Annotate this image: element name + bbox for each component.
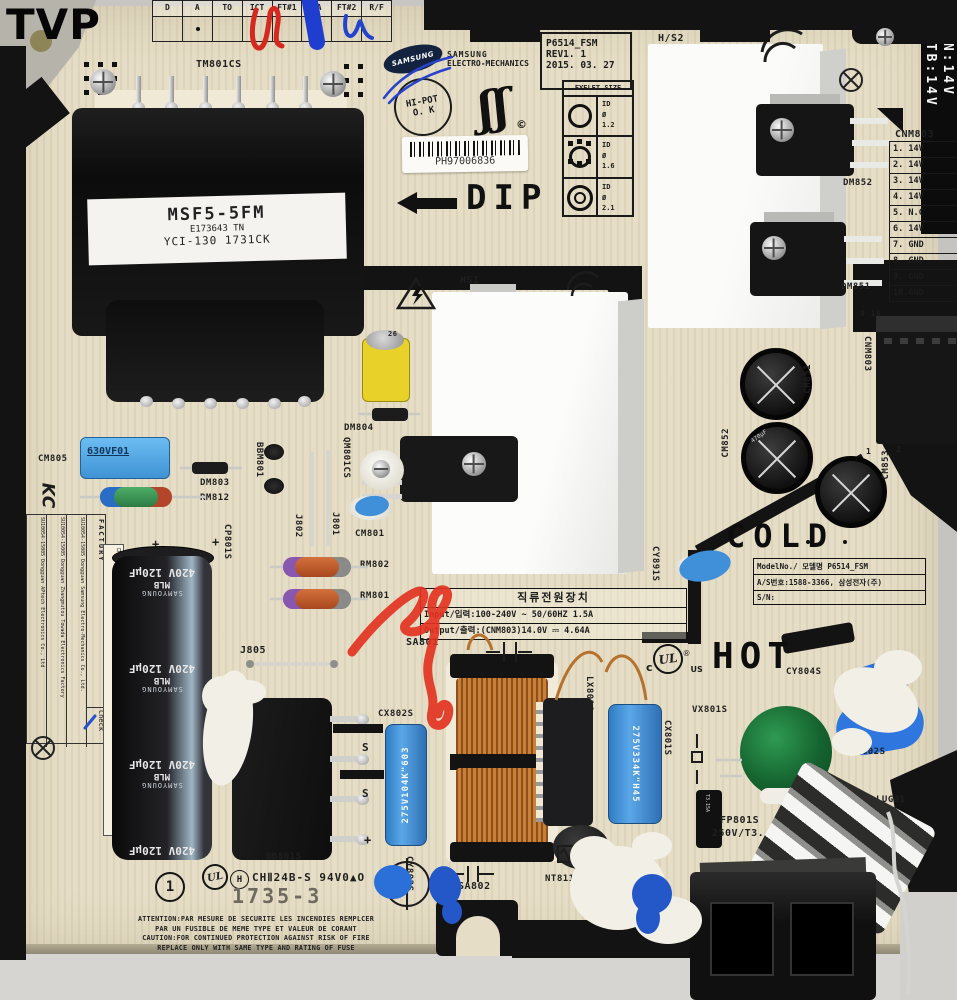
ref-cm853: CM853 [882, 450, 891, 480]
ref-qm801cs: QM801CS [341, 437, 350, 478]
transformer-screw [90, 69, 116, 95]
eyelet-dia: Ø [602, 110, 632, 121]
thermistor-nt811s [553, 825, 609, 869]
ul-r: ® [683, 649, 691, 658]
pin-row: 10.GND [890, 286, 957, 302]
ul-circle: UL [651, 642, 685, 676]
s-mark: S [362, 742, 369, 753]
ref-dm852: DM852 [843, 179, 873, 188]
hipot-line2: O. K [412, 105, 435, 119]
col-header: R/F [362, 1, 391, 16]
table-body-cell [362, 17, 391, 41]
ref-cm851: CM851 [804, 364, 813, 394]
transistor-lead [844, 236, 882, 242]
heatsink-hs1-side [618, 299, 644, 574]
eyelet-title: EYELET SIZE [564, 82, 632, 97]
solder-pad [676, 556, 712, 578]
cap-630vf01: 630VF01 [80, 437, 170, 479]
bottom-right-surface [900, 892, 957, 1000]
dip-arrow-head [397, 192, 417, 214]
plus-mark: + [364, 834, 372, 846]
choke-clamp [450, 842, 554, 862]
cnm803-title: CNM803 [895, 130, 934, 140]
hot-zone-label: HOT [712, 636, 795, 677]
ul-us: US [691, 665, 703, 674]
cap-print: SAMYOUNGMLB420V 120µF [112, 662, 212, 693]
silkscreen-dot [843, 540, 847, 544]
pin-row: 1. 14V [890, 142, 957, 158]
eyelet-symbol-double-ring [564, 179, 598, 217]
filmcap-cx801s: 275V334K"H45 [608, 704, 662, 824]
transistor-screw [462, 452, 486, 476]
solder-pad [348, 496, 394, 520]
cap-print: 420V 120µF [112, 844, 212, 857]
caution-line2: PAR UN FUSIBLE DE MEME TYPE ET VALEUR DE… [130, 925, 382, 935]
barcode-label: PH97006836 [402, 135, 529, 173]
copyright-mark: © [516, 118, 527, 131]
ref-bd801s: BD801S [266, 853, 302, 862]
solder-joint [140, 396, 153, 407]
pin-row: 5. N.C [890, 206, 957, 222]
ref-cy802s: CY802S [850, 748, 886, 757]
ref-nt811s: NT811S [545, 875, 581, 884]
solder-joint [236, 398, 249, 409]
date-stamp: 1735-3 [232, 884, 322, 908]
col-header: TO [213, 1, 243, 16]
cnm803-connector [876, 316, 957, 444]
eyelet-size: 2.1 [602, 203, 632, 214]
fuse-marking: T3.15A [704, 794, 710, 812]
frame-screw [876, 28, 894, 46]
ref-cy891s: CY891S [650, 546, 659, 582]
ref-cx802s: CX802S [378, 710, 414, 719]
solder-joint [356, 754, 369, 765]
ref-rm801: RM801 [360, 592, 390, 601]
table-body-cell [273, 17, 303, 41]
table-body-cell [243, 17, 273, 41]
pin-row: 8. GND [890, 254, 957, 270]
model-row: ModelNo./ 모델명 P6514_FSM [754, 559, 925, 575]
ul-c: c [646, 661, 653, 674]
cold-zone-label: COLD [726, 517, 835, 555]
table-body-cell [213, 17, 243, 41]
caution-block: ATTENTION:PAR MESURE DE SECURITE LES INC… [130, 915, 382, 953]
col-header: FT#2 [332, 1, 362, 16]
eyelet-id: ID [602, 99, 632, 110]
yellow-cap-top [366, 330, 404, 350]
transformer-core [106, 300, 324, 402]
ref-j802: J802 [293, 514, 302, 538]
frame-left-strip [0, 46, 26, 960]
standoff-post [264, 478, 284, 494]
transistor-lead [850, 162, 888, 168]
choke-clamp [450, 654, 554, 678]
kc-logo: KC [37, 483, 57, 510]
pin-row: 6. 14V [890, 222, 957, 238]
factory-row-aptech: SU10054-15005 Dongguan APtech Electronic… [27, 515, 47, 747]
col-header: ICT [243, 1, 273, 16]
transistor-q852 [756, 104, 854, 176]
frame-top-tab [700, 30, 770, 42]
eyelet-size: 1.2 [602, 120, 632, 131]
ul-listed-mark: c UL ® US [646, 644, 703, 674]
ref-cp801s: CP801S [222, 524, 231, 560]
ref-cm805: CM805 [38, 455, 68, 464]
pin-row: 7. GND [890, 238, 957, 254]
frame-top-right [852, 0, 957, 44]
solder-joint [204, 398, 217, 409]
frame-top-strip [424, 0, 866, 30]
diode-dm803 [192, 462, 228, 474]
label-26: 26 [388, 331, 397, 338]
pin-number-2: 2 [896, 446, 901, 454]
samsung-logo-text: SAMSUNG [391, 50, 435, 68]
ref-rm802: RM802 [360, 561, 390, 570]
ref-dm803: DM803 [200, 479, 230, 488]
s-mark: S [362, 788, 369, 799]
filmcap-cx802s: 275V104K"603 [385, 724, 427, 846]
ref-bbm801: BBM801 [254, 442, 263, 478]
ref-dm851: DM851 [841, 283, 871, 292]
pin-row: 4. 14V [890, 190, 957, 206]
via-dots [84, 62, 89, 67]
col-header: FT#1 [273, 1, 303, 16]
transistor-lead [846, 258, 884, 264]
power-spec-table: 직류전원장치 Input/입력:100-240V ~ 50/60HZ 1.5A … [420, 588, 687, 640]
heatsink-hs1 [432, 292, 628, 574]
brand-division: ELECTRO-MECHANICS [447, 59, 529, 68]
eyelet-table: EYELET SIZE ID Ø 1.2 ID Ø 1.6 ID [562, 80, 634, 217]
ref-cm801: CM801 [355, 530, 385, 539]
col-header: D [153, 1, 183, 16]
ref-fp801s: FP801S [720, 816, 759, 826]
barcode-number: PH97006836 [402, 155, 528, 168]
frame-top-tab [470, 30, 540, 42]
eyelet-id: ID [602, 140, 632, 151]
winding-copper [456, 678, 548, 758]
eyelet-dia: Ø [602, 193, 632, 204]
ref-cy803s: CY803S [404, 856, 413, 892]
eyelet-id: ID [602, 182, 632, 193]
diode-dm804 [372, 408, 408, 421]
inspection-table: D A TO ICT FT#1 BA FT#2 R/F [152, 0, 392, 42]
eyelet-symbol-grommet [564, 137, 598, 177]
bulk-cap-body: SAMYOUNGMLB420V 120µF SAMYOUNGMLB420V 12… [112, 556, 212, 860]
transformer-screw [320, 71, 346, 97]
transistor-q851 [750, 222, 846, 296]
pcb-photo: D A TO ICT FT#1 BA FT#2 R/F TM801CS [0, 0, 957, 1000]
resistor-rm801 [283, 589, 351, 609]
asn-row: A/S번호:1588-3366, 삼성전자(주) [754, 575, 925, 591]
table-body-cell [332, 17, 362, 41]
watermark: TVP [6, 0, 101, 49]
ref-lx801s: LX801S [584, 676, 593, 712]
horseshoe-arch [456, 916, 500, 956]
ref-dm804: DM804 [344, 424, 374, 433]
silkscreen-bar [340, 770, 384, 779]
plus-mark: + [212, 536, 220, 548]
silkscreen-dot [806, 540, 810, 544]
factory-table: SU10054-15005 Dongguan APtech Electronic… [26, 514, 106, 744]
cap-630vf01-label: 630VF01 [87, 446, 129, 457]
eyelet-dia: Ø [602, 151, 632, 162]
ref-j801: J801 [330, 512, 339, 536]
table-body-cell [302, 17, 332, 41]
transistor-qm801 [400, 436, 518, 502]
resistor-rm812 [100, 487, 172, 507]
rev-date: 2015. 03. 27 [546, 60, 626, 71]
brand-name: SAMSUNG [447, 50, 529, 59]
col-header: BA [302, 1, 332, 16]
pin-row: 2. 14V [890, 158, 957, 174]
circled-one-stamp: 1 [155, 872, 185, 902]
fuse-fp801s: T3.15A [696, 790, 722, 848]
transistor-screw [762, 236, 786, 260]
eyelet-size: 1.6 [602, 161, 632, 172]
ref-sa801: SA801 [406, 638, 439, 648]
sn-row: S/N: [754, 591, 925, 604]
solder-joint [172, 398, 185, 409]
ref-cm852: CM852 [722, 428, 731, 458]
col-header: A [183, 1, 213, 16]
caution-line3: CAUTION:FOR CONTINUED PROTECTION AGAINST… [130, 934, 382, 944]
ref-vx801s: VX801S [692, 706, 728, 715]
cnm803-pin-table: 1. 14V 2. 14V 3. 14V 4. 14V 5. N.C 6. 14… [889, 141, 957, 302]
cap-cm852: 470µF [741, 422, 813, 494]
cap-cm851 [740, 348, 812, 420]
brand-text: SAMSUNG ELECTRO-MECHANICS [447, 50, 529, 68]
power-output: Output/출력:(CNM803)14.0V ⎓ 4.64A [421, 624, 686, 639]
cap-print: SAMYOUNGMLB420V 120µF [112, 566, 212, 597]
dip-arrow-shaft [415, 198, 457, 209]
ref-cx801s: CX801S [662, 720, 671, 756]
transformer-label: MSF5-5FM E173643 TN YCI-130 1731CK [87, 193, 347, 266]
resistor-rm802 [283, 557, 351, 577]
pin-row: 9. GND [890, 270, 957, 286]
bridge-bd801s [232, 698, 332, 860]
table-body-cell [153, 17, 183, 41]
dip-label: DIP [466, 178, 548, 218]
rev-model: P6514_FSM [546, 38, 626, 49]
pad-pin [372, 460, 390, 478]
choke-lx801s [543, 698, 593, 826]
transistor-screw [770, 118, 794, 142]
table-body-cell-mark [183, 17, 213, 41]
model-info-table: ModelNo./ 모델명 P6514_FSM A/S번호:1588-3366,… [753, 558, 926, 605]
cap-print: SAMYOUNGMLB420V 120µF [112, 758, 212, 789]
pin-number-1: 1 [866, 448, 871, 456]
power-title: 직류전원장치 [421, 589, 686, 608]
cert-line: CHⅡ24B-S 94V0▲O [252, 872, 365, 883]
pin-row: 3. 14V [890, 174, 957, 190]
caution-line1: ATTENTION:PAR MESURE DE SECURITE LES INC… [130, 915, 382, 925]
ref-cnm803-connector: CNM803 [862, 336, 871, 372]
winding-copper [456, 768, 548, 846]
standoff-post [264, 444, 284, 460]
factory-row-towada: SU10054-15005 Dongguan Zhangmutou Towada… [47, 515, 67, 747]
factory-row-samsung: SU10054-15005 Dongguan Samsung Electro-M… [67, 515, 87, 747]
rev-revision: REV1. 1 [546, 49, 626, 60]
silkscreen-bar [333, 724, 383, 733]
eyelet-symbol-ring [564, 97, 598, 135]
solder-joint [298, 396, 311, 407]
ac-connector-body [690, 872, 876, 1000]
via-dots [344, 64, 349, 69]
ref-j805: J805 [240, 646, 266, 656]
power-input: Input/입력:100-240V ~ 50/60HZ 1.5A [421, 608, 686, 624]
solder-joint [268, 398, 281, 409]
transistor-lead [852, 140, 890, 146]
ref-tm801cs: TM801CS [196, 60, 242, 70]
ref-rm812: RM812 [200, 494, 230, 503]
ref-sa802: SA802 [458, 882, 491, 892]
caution-line4: REPLACE ONLY WITH SAME TYPE AND RATING O… [130, 944, 382, 954]
ref-hs2: H/S2 [658, 34, 684, 44]
